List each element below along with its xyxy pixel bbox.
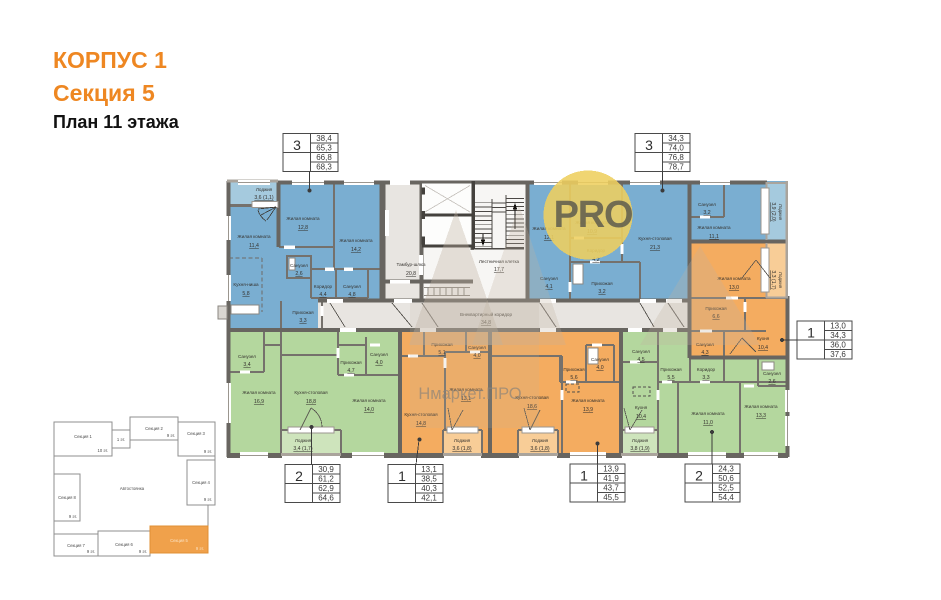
svg-text:PRO: PRO — [554, 194, 633, 236]
svg-text:52,5: 52,5 — [718, 484, 734, 493]
svg-text:4,4: 4,4 — [319, 292, 326, 298]
svg-text:3,3: 3,3 — [299, 318, 306, 324]
svg-text:76,8: 76,8 — [668, 153, 684, 162]
svg-text:10,4: 10,4 — [758, 345, 768, 351]
svg-text:Кухня: Кухня — [757, 336, 770, 341]
svg-text:3,9 (2,0): 3,9 (2,0) — [770, 202, 776, 222]
svg-text:1 эт.: 1 эт. — [117, 437, 125, 442]
svg-text:9 эт.: 9 эт. — [87, 549, 95, 554]
svg-text:3,3 (1,7): 3,3 (1,7) — [770, 270, 776, 290]
svg-text:11,4: 11,4 — [249, 243, 259, 249]
svg-text:9 эт.: 9 эт. — [204, 449, 212, 454]
svg-text:4,7: 4,7 — [347, 368, 354, 374]
svg-text:13,3: 13,3 — [756, 413, 766, 419]
svg-text:34,3: 34,3 — [668, 134, 684, 143]
svg-text:37,6: 37,6 — [830, 350, 846, 359]
svg-text:Коридор: Коридор — [697, 367, 716, 372]
svg-text:36,0: 36,0 — [830, 341, 846, 350]
svg-text:Секция 7: Секция 7 — [67, 543, 85, 548]
svg-text:5,8: 5,8 — [242, 291, 249, 297]
svg-text:Тамбур-шлюз: Тамбур-шлюз — [396, 262, 425, 267]
svg-text:34,3: 34,3 — [830, 331, 846, 340]
svg-text:66,8: 66,8 — [316, 153, 332, 162]
svg-text:Жилая комната: Жилая комната — [717, 276, 751, 281]
svg-text:Жилая комната: Жилая комната — [242, 390, 276, 395]
svg-text:13,9: 13,9 — [583, 407, 593, 413]
svg-text:4,8: 4,8 — [348, 292, 355, 298]
svg-text:Лоджия: Лоджия — [295, 438, 312, 443]
svg-text:Прихожая: Прихожая — [660, 367, 682, 372]
svg-text:3,4 (1,7): 3,4 (1,7) — [293, 446, 313, 452]
svg-text:3: 3 — [645, 137, 653, 153]
svg-text:41,9: 41,9 — [603, 474, 619, 483]
svg-text:План 11 этажа: План 11 этажа — [53, 112, 180, 132]
svg-text:61,2: 61,2 — [318, 475, 334, 484]
svg-text:42,1: 42,1 — [421, 494, 437, 503]
svg-text:3,2: 3,2 — [703, 210, 710, 216]
svg-text:64,6: 64,6 — [318, 494, 334, 503]
svg-text:3,6 (1,1): 3,6 (1,1) — [254, 195, 274, 201]
svg-text:20,8: 20,8 — [406, 271, 416, 277]
svg-text:78,7: 78,7 — [668, 163, 684, 172]
svg-text:14,2: 14,2 — [351, 247, 361, 253]
svg-text:Секция 6: Секция 6 — [115, 542, 133, 547]
svg-text:13,9: 13,9 — [603, 465, 619, 474]
svg-text:1: 1 — [580, 468, 588, 484]
svg-text:21,3: 21,3 — [650, 245, 660, 251]
svg-text:Секция 3: Секция 3 — [187, 431, 205, 436]
svg-text:1: 1 — [398, 468, 406, 484]
svg-text:24,3: 24,3 — [718, 465, 734, 474]
svg-text:Жилая комната: Жилая комната — [352, 398, 386, 403]
svg-text:12,8: 12,8 — [298, 225, 308, 231]
svg-text:4,5: 4,5 — [637, 357, 644, 363]
svg-text:Санузел: Санузел — [290, 263, 308, 268]
svg-text:3,2: 3,2 — [598, 289, 605, 295]
svg-text:30,9: 30,9 — [318, 465, 334, 474]
svg-text:Жилая комната: Жилая комната — [691, 411, 725, 416]
svg-text:Кухня-столовая: Кухня-столовая — [638, 236, 672, 241]
svg-text:Секция 2: Секция 2 — [145, 426, 163, 431]
svg-text:2: 2 — [295, 468, 303, 484]
svg-text:9 эт.: 9 эт. — [167, 433, 175, 438]
svg-text:45,5: 45,5 — [603, 493, 619, 502]
svg-text:2: 2 — [695, 468, 703, 484]
svg-text:Санузел: Санузел — [343, 284, 361, 289]
svg-text:Санузел: Санузел — [763, 371, 781, 376]
svg-text:Санузел: Санузел — [238, 354, 256, 359]
svg-text:9 эт.: 9 эт. — [196, 546, 204, 551]
svg-text:16,9: 16,9 — [254, 399, 264, 405]
svg-text:4,0: 4,0 — [596, 365, 603, 371]
svg-text:Коридор: Коридор — [314, 284, 333, 289]
svg-text:Лоджия: Лоджия — [454, 438, 471, 443]
svg-text:74,0: 74,0 — [668, 144, 684, 153]
svg-text:Лоджия: Лоджия — [778, 204, 783, 221]
svg-text:Прихожая: Прихожая — [292, 310, 314, 315]
svg-text:Жилая комната: Жилая комната — [286, 216, 320, 221]
svg-text:68,3: 68,3 — [316, 163, 332, 172]
svg-text:Лоджия: Лоджия — [532, 438, 549, 443]
svg-text:11,1: 11,1 — [709, 234, 719, 240]
svg-text:Автостоянка: Автостоянка — [120, 486, 145, 491]
svg-text:4,3: 4,3 — [701, 350, 708, 356]
svg-text:3,6 (1,8): 3,6 (1,8) — [452, 446, 472, 452]
svg-text:13,0: 13,0 — [729, 285, 739, 291]
svg-text:3: 3 — [293, 137, 301, 153]
svg-text:Нмаркет.ПРО: Нмаркет.ПРО — [418, 385, 521, 403]
svg-text:40,3: 40,3 — [421, 484, 437, 493]
svg-text:3,8 (1,9): 3,8 (1,9) — [630, 446, 650, 452]
svg-text:Санузел: Санузел — [370, 352, 388, 357]
svg-text:Секция 4: Секция 4 — [192, 480, 210, 485]
svg-text:КОРПУС 1: КОРПУС 1 — [53, 47, 167, 73]
svg-text:Жилая комната: Жилая комната — [339, 238, 373, 243]
svg-text:38,5: 38,5 — [421, 475, 437, 484]
svg-text:Кухня-ниша: Кухня-ниша — [233, 282, 259, 287]
svg-text:10,4: 10,4 — [636, 414, 646, 420]
svg-text:13,1: 13,1 — [421, 465, 437, 474]
svg-text:43,7: 43,7 — [603, 484, 619, 493]
svg-text:Жилая комната: Жилая комната — [571, 398, 605, 403]
svg-text:9 эт.: 9 эт. — [69, 514, 77, 519]
svg-text:Лоджия: Лоджия — [778, 272, 783, 289]
svg-text:Жилая комната: Жилая комната — [697, 225, 731, 230]
svg-text:2,6: 2,6 — [295, 271, 302, 277]
svg-text:3,6 (1,8): 3,6 (1,8) — [530, 446, 550, 452]
svg-text:14,0: 14,0 — [364, 407, 374, 413]
svg-text:Лоджия: Лоджия — [632, 438, 649, 443]
svg-text:1: 1 — [807, 325, 815, 341]
svg-text:3,3: 3,3 — [702, 375, 709, 381]
svg-text:9 эт.: 9 эт. — [204, 497, 212, 502]
svg-text:Секция 5: Секция 5 — [53, 80, 155, 106]
svg-text:Секция 8: Секция 8 — [58, 495, 76, 500]
svg-text:Прихожая: Прихожая — [563, 367, 585, 372]
svg-text:5,5: 5,5 — [667, 375, 674, 381]
svg-text:Лоджия: Лоджия — [256, 187, 273, 192]
svg-text:3,4: 3,4 — [243, 362, 250, 368]
svg-text:50,6: 50,6 — [718, 474, 734, 483]
svg-text:Кухня-столовая: Кухня-столовая — [294, 390, 328, 395]
svg-text:Санузел: Санузел — [698, 202, 716, 207]
svg-text:13,0: 13,0 — [830, 322, 846, 331]
svg-text:62,9: 62,9 — [318, 484, 334, 493]
svg-text:2,6: 2,6 — [768, 379, 775, 385]
svg-text:Прихожая: Прихожая — [340, 360, 362, 365]
svg-text:Жилая комната: Жилая комната — [237, 234, 271, 239]
svg-text:11,0: 11,0 — [703, 420, 713, 426]
svg-text:Санузел: Санузел — [632, 349, 650, 354]
svg-text:Жилая комната: Жилая комната — [744, 404, 778, 409]
svg-text:38,4: 38,4 — [316, 134, 332, 143]
svg-text:4,0: 4,0 — [375, 360, 382, 366]
svg-text:9 эт.: 9 эт. — [139, 549, 147, 554]
svg-text:Санузел: Санузел — [591, 357, 609, 362]
svg-text:10 эт.: 10 эт. — [98, 448, 108, 453]
svg-text:65,3: 65,3 — [316, 144, 332, 153]
svg-text:Секция 1: Секция 1 — [74, 434, 92, 439]
svg-text:5,6: 5,6 — [570, 375, 577, 381]
svg-text:18,8: 18,8 — [306, 399, 316, 405]
svg-text:Прихожая: Прихожая — [591, 281, 613, 286]
svg-text:54,4: 54,4 — [718, 493, 734, 502]
svg-text:Секция 5: Секция 5 — [170, 538, 188, 543]
svg-text:Кухня: Кухня — [635, 405, 648, 410]
